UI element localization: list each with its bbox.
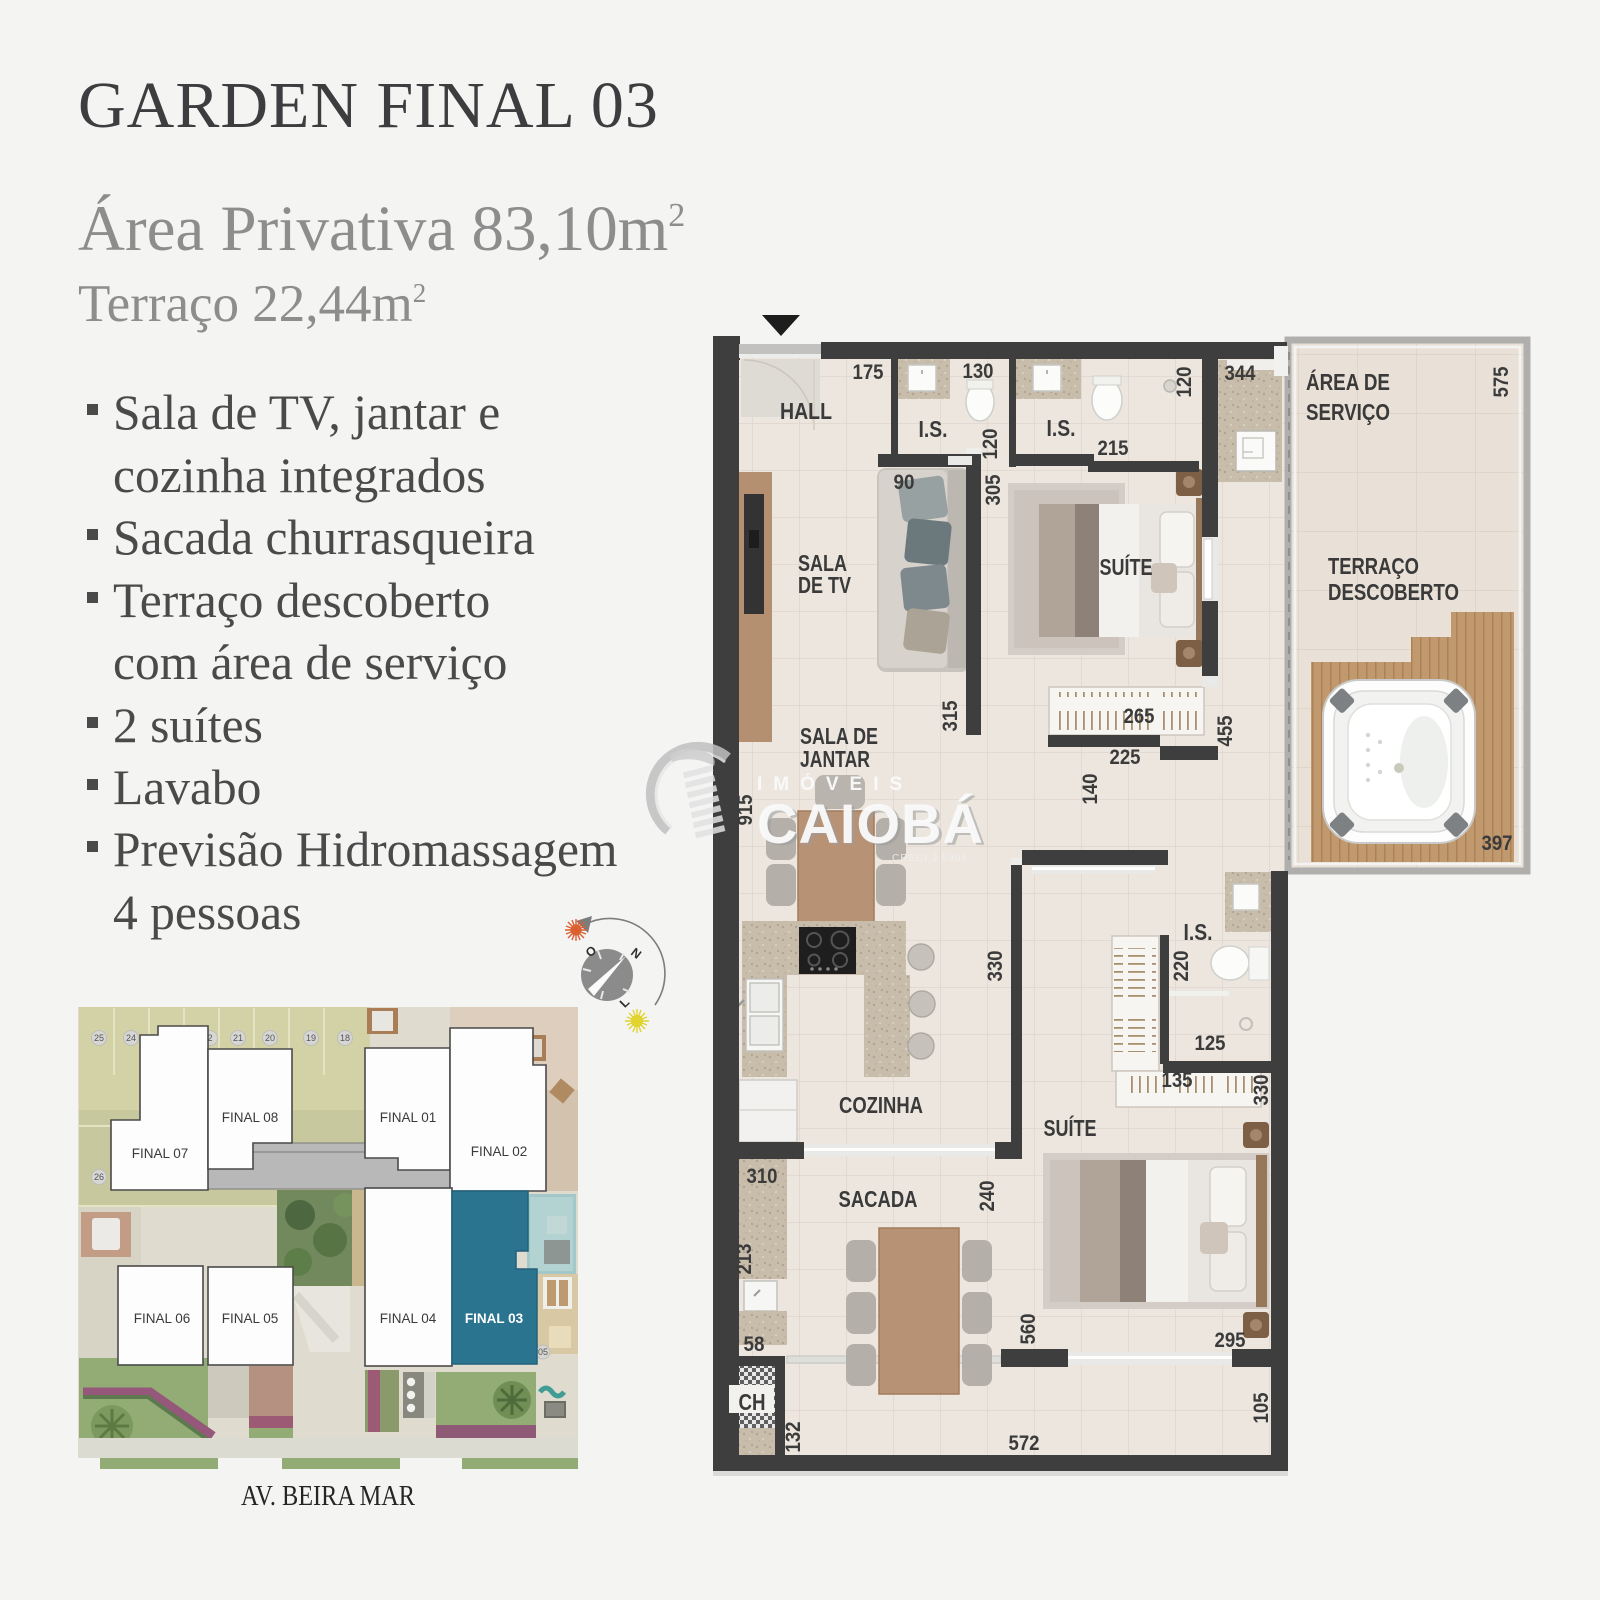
svg-text:FINAL 06: FINAL 06 [134,1311,191,1326]
svg-text:265: 265 [1124,704,1155,728]
svg-text:105: 105 [1249,1392,1273,1423]
svg-text:N: N [628,945,644,962]
svg-text:FINAL 05: FINAL 05 [222,1311,279,1326]
svg-text:310: 310 [747,1164,778,1188]
svg-text:HALL: HALL [780,398,832,424]
svg-text:FINAL 01: FINAL 01 [380,1110,437,1125]
svg-text:140: 140 [1078,773,1102,804]
svg-text:225: 225 [1110,745,1141,769]
svg-text:ÁREA DE: ÁREA DE [1306,368,1390,395]
svg-text:19: 19 [306,1033,316,1043]
svg-text:I.S.: I.S. [919,416,948,442]
svg-text:FINAL 04: FINAL 04 [380,1311,437,1326]
svg-text:572: 572 [1009,1431,1040,1455]
svg-text:SUÍTE: SUÍTE [1100,553,1153,580]
svg-text:18: 18 [340,1033,350,1043]
svg-text:Terraço 22,44m2: Terraço 22,44m2 [78,275,426,333]
svg-text:330: 330 [1249,1074,1273,1105]
svg-text:135: 135 [1162,1068,1193,1092]
svg-text:344: 344 [1225,361,1256,385]
svg-text:com área de serviço: com área de serviço [113,635,507,690]
svg-text:I.S.: I.S. [1184,919,1213,945]
svg-text:58: 58 [744,1332,765,1356]
svg-text:DESCOBERTO: DESCOBERTO [1328,579,1459,605]
svg-text:132: 132 [781,1421,805,1452]
svg-text:CH: CH [739,1389,766,1415]
svg-text:175: 175 [853,360,884,384]
svg-text:575: 575 [1489,366,1513,397]
svg-text:GARDEN FINAL 03: GARDEN FINAL 03 [78,69,659,142]
svg-text:24: 24 [126,1033,136,1043]
svg-text:240: 240 [975,1180,999,1211]
svg-text:2 suítes: 2 suítes [113,698,263,753]
svg-text:20: 20 [265,1033,275,1043]
svg-text:SACADA: SACADA [839,1186,918,1212]
svg-text:FINAL 02: FINAL 02 [471,1144,528,1159]
svg-text:315: 315 [938,700,962,731]
svg-text:Sacada churrasqueira: Sacada churrasqueira [113,510,535,565]
svg-text:295: 295 [1215,1328,1246,1352]
svg-text:560: 560 [1016,1313,1040,1344]
svg-text:05: 05 [538,1347,548,1357]
svg-text:Lavabo: Lavabo [113,760,261,815]
svg-text:Previsão Hidromassagem: Previsão Hidromassagem [113,822,618,877]
svg-text:I.S.: I.S. [1047,415,1076,441]
svg-text:25: 25 [94,1033,104,1043]
svg-text:90: 90 [894,470,915,494]
svg-text:4 pessoas: 4 pessoas [113,885,301,940]
svg-text:220: 220 [1169,950,1193,981]
svg-text:125: 125 [1195,1031,1226,1055]
svg-text:FINAL 03: FINAL 03 [465,1311,524,1326]
svg-text:COZINHA: COZINHA [839,1092,923,1118]
svg-text:397: 397 [1482,831,1513,855]
svg-text:330: 330 [983,950,1007,981]
svg-text:FINAL 07: FINAL 07 [132,1146,189,1161]
svg-text:SERVIÇO: SERVIÇO [1306,399,1390,425]
svg-text:SUÍTE: SUÍTE [1044,1114,1097,1141]
svg-text:Área Privativa 83,10m2: Área Privativa 83,10m2 [78,193,685,265]
svg-text:305: 305 [981,474,1005,505]
svg-text:DE TV: DE TV [798,572,852,598]
svg-text:21: 21 [233,1033,243,1043]
svg-text:cozinha integrados: cozinha integrados [113,448,485,503]
svg-text:CAIOBÁ: CAIOBÁ [757,792,984,855]
svg-text:213: 213 [732,1243,756,1274]
svg-text:26: 26 [94,1172,104,1182]
svg-text:120: 120 [978,428,1002,459]
svg-text:FINAL 08: FINAL 08 [222,1110,279,1125]
svg-text:Terraço descoberto: Terraço descoberto [113,573,490,628]
svg-text:CRECI J 5906: CRECI J 5906 [892,853,968,864]
svg-text:915: 915 [733,794,757,825]
svg-text:215: 215 [1098,436,1129,460]
svg-text:120: 120 [1172,366,1196,397]
svg-text:Sala de TV, jantar e: Sala de TV, jantar e [113,385,500,440]
svg-text:455: 455 [1213,715,1237,746]
svg-text:L: L [617,995,633,1011]
svg-text:JANTAR: JANTAR [800,746,870,772]
svg-text:TERRAÇO: TERRAÇO [1328,553,1419,579]
svg-text:AV. BEIRA MAR: AV. BEIRA MAR [241,1481,415,1512]
svg-text:130: 130 [963,359,994,383]
